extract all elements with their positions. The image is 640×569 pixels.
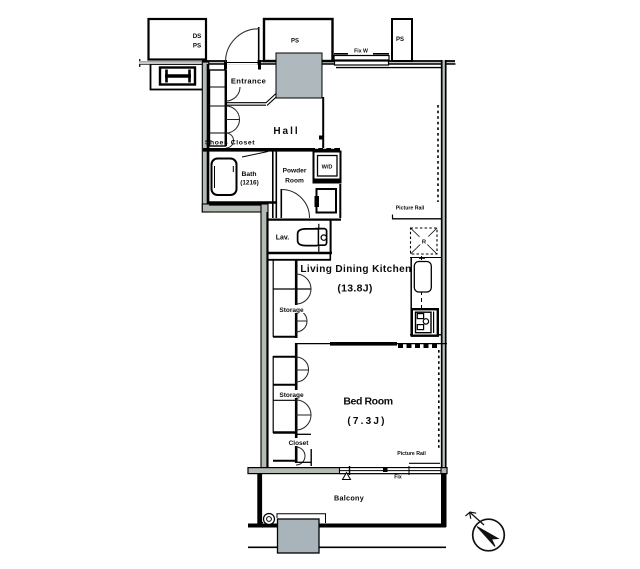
svg-text:Balcony: Balcony [334,494,364,503]
svg-text:W/D: W/D [322,165,333,171]
svg-text:Bed Room: Bed Room [343,396,392,408]
svg-text:Storage: Storage [279,307,304,314]
svg-text:(1216): (1216) [240,180,258,187]
svg-text:Fix W: Fix W [354,49,368,55]
svg-text:PS: PS [396,37,404,43]
svg-text:Powder: Powder [283,168,307,175]
svg-text:Lav.: Lav. [276,235,290,242]
svg-text:Closet: Closet [289,440,310,447]
svg-text:Storage: Storage [279,392,304,399]
svg-text:DS: DS [193,33,202,40]
svg-text:Hall: Hall [273,126,299,137]
svg-text:Room: Room [285,178,304,185]
svg-text:Picture Rail: Picture Rail [397,451,426,457]
svg-text:Shoes Closet: Shoes Closet [205,140,255,147]
svg-text:PS: PS [193,43,201,50]
svg-text:PS: PS [291,39,299,45]
svg-text:(7.3J): (7.3J) [347,416,386,427]
svg-text:(13.8J): (13.8J) [337,283,372,295]
svg-text:Living Dining Kitchen: Living Dining Kitchen [300,264,411,275]
svg-text:Picture Rail: Picture Rail [396,206,425,212]
svg-text:Fix: Fix [394,475,402,481]
svg-text:Bath: Bath [241,171,256,178]
svg-text:Entrance: Entrance [231,77,266,86]
